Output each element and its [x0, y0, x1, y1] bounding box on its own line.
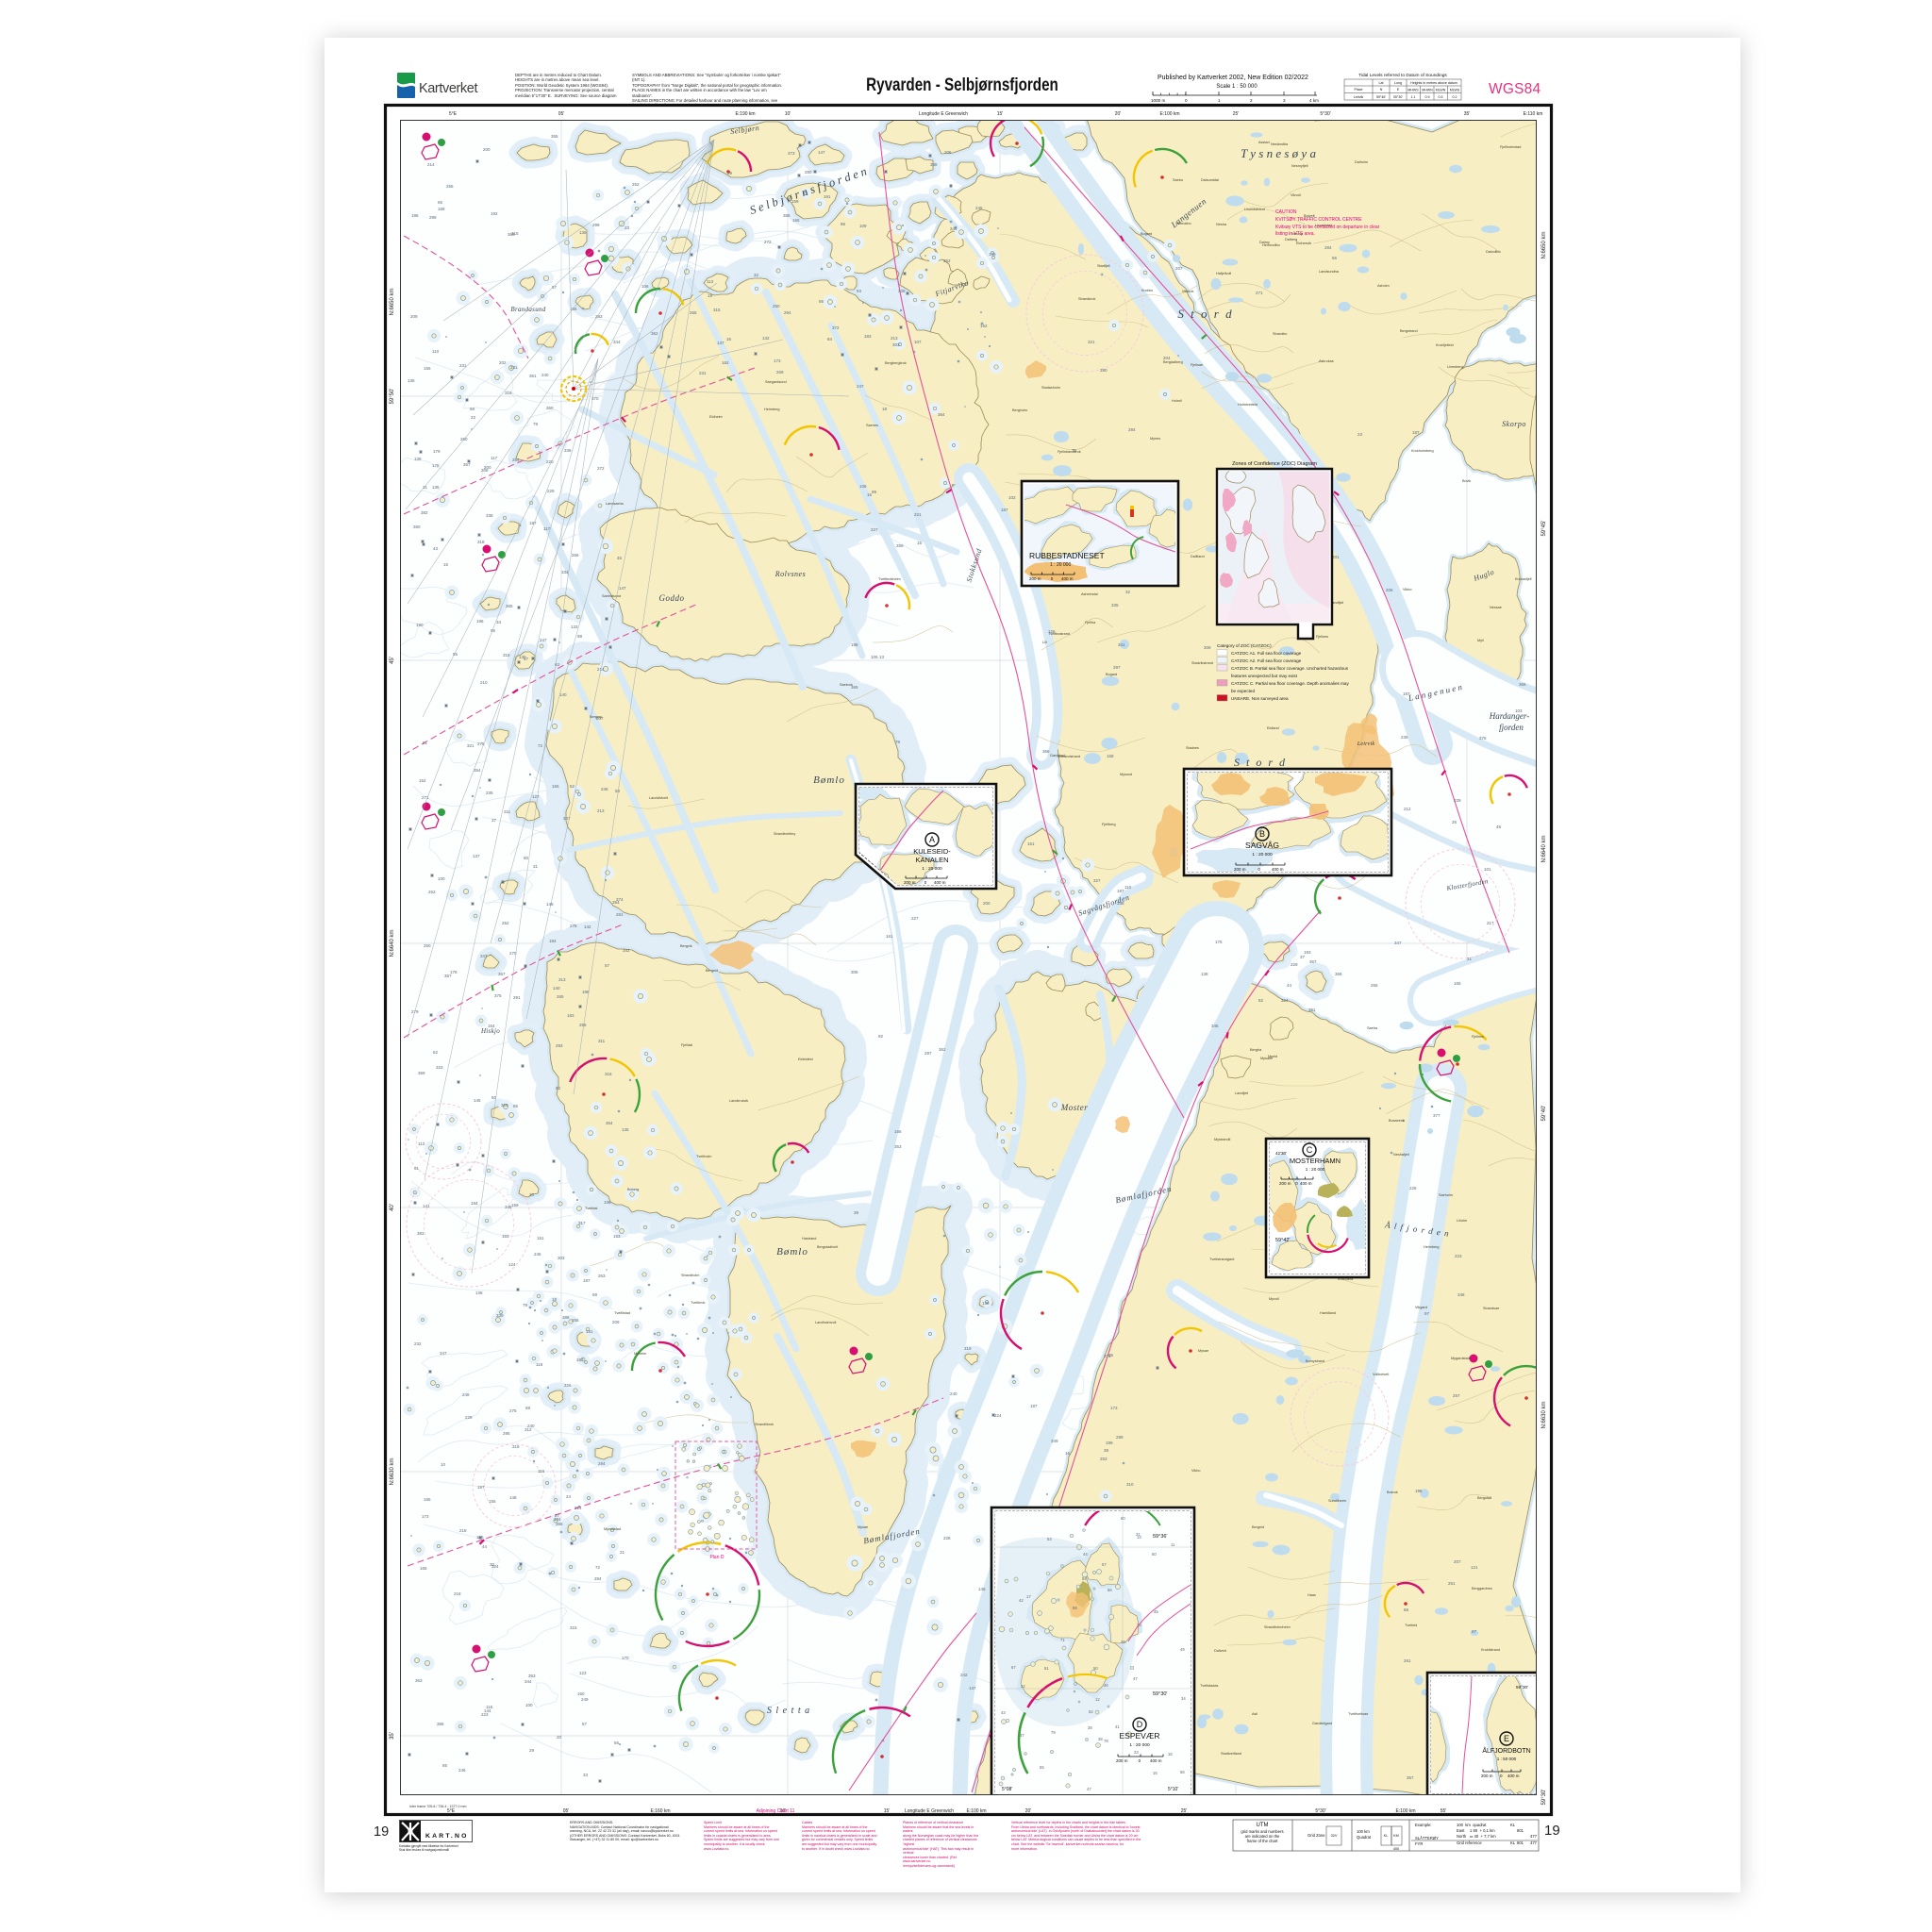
- svg-text:109: 109: [859, 224, 867, 228]
- svg-text:Moster: Moster: [1060, 1103, 1089, 1112]
- svg-text:145: 145: [978, 1587, 986, 1591]
- svg-text:SLÅTTERØY: SLÅTTERØY: [1415, 1836, 1439, 1840]
- svg-text:38: 38: [1104, 1448, 1109, 1453]
- svg-text:Mysae: Mysae: [1198, 1349, 1208, 1353]
- svg-text:58: 58: [615, 789, 621, 793]
- svg-text:363: 363: [415, 1678, 423, 1683]
- svg-text:213: 213: [891, 336, 898, 341]
- svg-text:S t o r d: S t o r d: [1177, 307, 1233, 321]
- svg-text:57: 57: [1102, 1562, 1107, 1567]
- svg-text:336: 336: [564, 448, 572, 453]
- svg-text:269: 269: [896, 543, 904, 548]
- svg-text:65: 65: [513, 1104, 519, 1108]
- svg-text:232: 232: [414, 1341, 422, 1346]
- svg-text:Stadvikstrand: Stadvikstrand: [1191, 661, 1213, 665]
- svg-text:318: 318: [477, 540, 485, 544]
- svg-text:147: 147: [969, 1686, 976, 1690]
- svg-text:32V: 32V: [1331, 1834, 1338, 1838]
- svg-text:315: 315: [570, 1625, 577, 1630]
- svg-text:187: 187: [1001, 508, 1008, 512]
- svg-text:165: 165: [1454, 981, 1461, 986]
- svg-text:200: 200: [484, 465, 491, 470]
- svg-text:315: 315: [713, 308, 721, 312]
- svg-text:284: 284: [1128, 427, 1136, 432]
- svg-text:Rolvsnes: Rolvsnes: [774, 570, 806, 578]
- svg-text:253: 253: [1100, 1457, 1108, 1461]
- svg-text:66 40 + 7,7 km: 66 40 + 7,7 km: [1470, 1834, 1496, 1839]
- svg-text:19: 19: [708, 293, 713, 298]
- svg-text:299: 299: [592, 223, 600, 227]
- svg-text:79: 79: [1051, 1730, 1056, 1735]
- svg-text:369: 369: [508, 232, 515, 237]
- svg-text:N: N: [1380, 88, 1383, 92]
- svg-text:Landviktveit: Landviktveit: [649, 796, 669, 800]
- svg-text:S l e t t a: S l e t t a: [767, 1706, 810, 1716]
- svg-text:23: 23: [1357, 432, 1363, 437]
- svg-text:Heights in metres above datum: Heights in metres above datum: [1410, 81, 1457, 85]
- svg-text:56: 56: [1332, 256, 1338, 260]
- svg-text:Vikkrok: Vikkrok: [1182, 290, 1193, 293]
- svg-text:229: 229: [1291, 962, 1298, 967]
- svg-text:345: 345: [505, 1205, 512, 1209]
- svg-text:127: 127: [532, 794, 540, 799]
- svg-text:117: 117: [543, 526, 551, 531]
- svg-text:151: 151: [1027, 841, 1035, 846]
- svg-text:Place: Place: [1355, 88, 1363, 92]
- svg-text:213: 213: [597, 808, 605, 813]
- svg-text:Myvoll: Myvoll: [1269, 1297, 1279, 1301]
- svg-text:400 m: 400 m: [1507, 1774, 1520, 1778]
- svg-text:352: 352: [943, 258, 951, 263]
- svg-text:190: 190: [416, 623, 424, 627]
- svg-text:263: 263: [598, 1274, 606, 1278]
- svg-text:50: 50: [1093, 1666, 1098, 1671]
- svg-text:Strandsae: Strandsae: [1483, 1307, 1499, 1310]
- svg-text:24: 24: [566, 1494, 572, 1499]
- svg-text:Saeholm: Saeholm: [1439, 1193, 1453, 1197]
- svg-text:Bovik: Bovik: [1462, 479, 1471, 483]
- svg-text:Eidland: Eidland: [1267, 726, 1279, 730]
- svg-text:Vikbo: Vikbo: [1403, 588, 1411, 591]
- svg-text:348: 348: [1457, 1292, 1465, 1297]
- svg-text:271: 271: [1256, 291, 1263, 295]
- svg-text:51: 51: [1044, 1666, 1049, 1671]
- svg-text:303: 303: [558, 1256, 565, 1260]
- svg-text:72: 72: [595, 1565, 601, 1570]
- svg-text:100: 100: [525, 1703, 533, 1707]
- svg-text:149: 149: [989, 252, 996, 257]
- svg-text:183: 183: [567, 1013, 575, 1018]
- svg-text:313: 313: [558, 977, 566, 982]
- svg-text:353: 353: [894, 1144, 902, 1149]
- svg-text:1 : 20 000: 1 : 20 000: [1306, 1167, 1325, 1172]
- svg-text:252: 252: [632, 182, 640, 187]
- svg-text:151: 151: [537, 1236, 544, 1241]
- svg-text:1 : 20 000: 1 : 20 000: [1129, 1742, 1150, 1748]
- svg-text:200 m: 200 m: [1029, 576, 1041, 581]
- svg-text:218: 218: [454, 1591, 461, 1596]
- svg-text:147: 147: [619, 586, 626, 591]
- svg-text:155: 155: [552, 784, 559, 789]
- svg-text:200 m: 200 m: [1116, 1758, 1128, 1763]
- svg-text:5°E: 5°E: [447, 1808, 456, 1814]
- svg-text:299: 299: [429, 215, 437, 220]
- svg-text:229: 229: [1454, 798, 1461, 803]
- svg-text:191: 191: [824, 194, 831, 199]
- svg-text:MHWS: MHWS: [1407, 89, 1419, 92]
- svg-text:52: 52: [570, 784, 575, 789]
- svg-text:297: 297: [1113, 665, 1121, 670]
- svg-text:KL: KL: [1510, 1840, 1516, 1845]
- svg-text:477: 477: [1530, 1834, 1538, 1839]
- svg-text:123: 123: [579, 1671, 587, 1675]
- svg-text:Bomystrand: Bomystrand: [1306, 1359, 1324, 1363]
- svg-text:372: 372: [832, 325, 840, 330]
- svg-text:59°36': 59°36': [1153, 1534, 1168, 1540]
- svg-text:78: 78: [1104, 1739, 1108, 1743]
- svg-text:Nesha: Nesha: [1216, 223, 1227, 226]
- svg-text:362: 362: [651, 331, 658, 336]
- svg-text:1 80 + 0,1 km: 1 80 + 0,1 km: [1470, 1828, 1495, 1833]
- svg-text:318: 318: [503, 653, 510, 658]
- svg-text:Saeeidsund: Saeeidsund: [602, 594, 621, 598]
- svg-text:218: 218: [459, 1528, 467, 1533]
- svg-text:Neshafjell: Neshafjell: [1393, 1153, 1409, 1157]
- svg-text:311: 311: [504, 809, 511, 814]
- svg-text:55: 55: [1040, 1765, 1044, 1770]
- svg-text:250: 250: [424, 943, 431, 948]
- svg-text:15': 15': [884, 1808, 891, 1814]
- svg-text:347: 347: [1394, 941, 1402, 945]
- svg-text:Gardeidgard: Gardeidgard: [1312, 1722, 1332, 1725]
- svg-text:Fjellberg: Fjellberg: [1102, 823, 1116, 826]
- svg-text:Asheimdal: Asheimdal: [1081, 592, 1098, 596]
- svg-text:400 m: 400 m: [1061, 576, 1074, 581]
- svg-text:400 m: 400 m: [1150, 1758, 1162, 1763]
- svg-text:59°45': 59°45': [1541, 521, 1547, 537]
- svg-text:Mysaeli: Mysaeli: [1260, 1057, 1273, 1060]
- svg-text:Category of ZOC (CATZOC): Category of ZOC (CATZOC): [1217, 643, 1272, 648]
- svg-text:features unexpected but may ex: features unexpected but may exist: [1231, 674, 1298, 678]
- svg-text:Fjelldal: Fjelldal: [681, 1043, 692, 1047]
- svg-text:200 m: 200 m: [904, 880, 916, 885]
- svg-text:45': 45': [390, 657, 395, 664]
- svg-text:113: 113: [418, 1141, 425, 1146]
- svg-text:367: 367: [463, 462, 471, 467]
- svg-text:CATZOC C. Partial sea floor c: CATZOC C. Partial sea floor coverage. De…: [1231, 681, 1349, 686]
- svg-text:361: 361: [529, 374, 537, 378]
- svg-text:349: 349: [1051, 1439, 1058, 1443]
- svg-text:Stadtveitland: Stadtveitland: [1221, 1752, 1241, 1756]
- svg-text:251: 251: [1448, 1581, 1456, 1586]
- svg-text:Bergstrand: Bergstrand: [1400, 329, 1418, 333]
- svg-text:Holmli: Holmli: [1172, 399, 1182, 403]
- svg-text:138: 138: [475, 1291, 483, 1295]
- svg-text:196: 196: [1415, 1489, 1423, 1493]
- svg-text:49: 49: [1180, 1647, 1185, 1652]
- svg-text:364: 364: [938, 412, 945, 417]
- svg-text:160: 160: [577, 1691, 585, 1696]
- svg-text:listing in VTS area.: listing in VTS area.: [1275, 231, 1315, 237]
- svg-text:250: 250: [773, 304, 780, 308]
- svg-text:247: 247: [540, 638, 547, 642]
- svg-text:Zones of Confidence (ZOC) Diag: Zones of Confidence (ZOC) Diagram: [1232, 461, 1317, 467]
- svg-text:Fjellha: Fjellha: [1085, 621, 1096, 625]
- svg-text:148: 148: [546, 902, 554, 907]
- svg-text:183: 183: [864, 334, 872, 339]
- svg-text:15': 15': [997, 111, 1004, 117]
- svg-text:338: 338: [898, 289, 906, 293]
- svg-text:16: 16: [1168, 1752, 1173, 1757]
- svg-text:138: 138: [1201, 972, 1208, 976]
- svg-text:161: 161: [886, 934, 893, 939]
- svg-text:357: 357: [444, 974, 452, 978]
- svg-text:235: 235: [486, 791, 493, 795]
- svg-text:Mysae: Mysae: [858, 1525, 868, 1529]
- svg-text:284: 284: [594, 1576, 602, 1581]
- svg-text:E: E: [1397, 88, 1400, 92]
- svg-text:31: 31: [1136, 1532, 1141, 1537]
- svg-text:116: 116: [538, 1469, 545, 1474]
- svg-text:224: 224: [994, 1413, 1002, 1418]
- svg-text:38: 38: [1098, 1737, 1103, 1741]
- svg-text:124: 124: [508, 1262, 516, 1267]
- svg-text:A: A: [929, 835, 935, 844]
- svg-text:135: 135: [408, 378, 415, 383]
- svg-text:212: 212: [1404, 807, 1411, 811]
- svg-text:139: 139: [982, 1301, 990, 1306]
- svg-text:400 m: 400 m: [934, 880, 946, 885]
- svg-text:40': 40': [390, 1204, 395, 1211]
- svg-text:Dalliland: Dalliland: [1191, 555, 1205, 558]
- svg-text:93: 93: [857, 289, 862, 293]
- svg-text:Leirvik: Leirvik: [1357, 741, 1375, 747]
- svg-text:121: 121: [1471, 1565, 1478, 1570]
- svg-text:Mysund: Mysund: [1120, 773, 1132, 776]
- svg-text:SAGVÅG: SAGVÅG: [1245, 841, 1279, 850]
- svg-text:108: 108: [604, 1200, 611, 1205]
- svg-text:Nessae: Nessae: [1490, 606, 1502, 609]
- svg-text:141: 141: [423, 1204, 430, 1208]
- svg-text:245: 245: [534, 1252, 541, 1257]
- svg-text:249: 249: [950, 226, 958, 231]
- svg-text:110: 110: [432, 349, 440, 354]
- svg-text:477: 477: [1530, 1840, 1538, 1845]
- svg-text:21: 21: [620, 1550, 625, 1555]
- svg-text:354: 354: [474, 768, 481, 773]
- svg-text:E: E: [1504, 1734, 1509, 1743]
- svg-text:364: 364: [606, 1121, 613, 1125]
- svg-text:Askrokas: Askrokas: [1319, 359, 1334, 363]
- svg-text:15: 15: [917, 541, 923, 545]
- svg-text:Strandbo: Strandbo: [1273, 332, 1287, 336]
- svg-text:Landsaeha: Landsaeha: [606, 502, 625, 506]
- svg-text:117: 117: [491, 456, 498, 460]
- svg-text:Strandkrok: Strandkrok: [1078, 297, 1095, 301]
- svg-text:Bogard: Bogard: [1141, 232, 1152, 236]
- svg-text:05': 05': [563, 1808, 570, 1814]
- svg-text:Fjellnes: Fjellnes: [1316, 635, 1328, 639]
- svg-text:400: 400: [1393, 1847, 1399, 1851]
- svg-text:184: 184: [549, 939, 557, 943]
- svg-text:ÅLFJORDBOTN: ÅLFJORDBOTN: [1482, 1746, 1530, 1755]
- svg-text:257: 257: [1453, 1393, 1460, 1398]
- svg-text:Asli: Asli: [1252, 1712, 1257, 1716]
- svg-text:227: 227: [871, 527, 878, 532]
- svg-text:0.5: 0.5: [1439, 95, 1443, 99]
- svg-text:62: 62: [1089, 1709, 1093, 1714]
- svg-text:84: 84: [827, 337, 833, 341]
- svg-text:Bergdalberg: Bergdalberg: [1163, 360, 1183, 364]
- svg-text:305: 305: [851, 970, 858, 974]
- svg-text:293: 293: [556, 1043, 563, 1048]
- svg-text:56: 56: [1180, 1770, 1185, 1774]
- svg-text:66: 66: [1108, 1588, 1112, 1592]
- svg-text:365: 365: [506, 604, 513, 608]
- svg-text:229: 229: [465, 1415, 473, 1420]
- svg-text:113: 113: [707, 279, 714, 284]
- svg-text:217: 217: [1487, 921, 1494, 925]
- svg-text:Eidheim: Eidheim: [709, 415, 723, 419]
- svg-text:56: 56: [819, 299, 824, 304]
- svg-text:Saenes: Saenes: [866, 424, 878, 427]
- svg-text:197: 197: [477, 1485, 485, 1490]
- svg-text:1 : 20 000: 1 : 20 000: [1252, 852, 1273, 858]
- svg-text:345: 345: [1211, 1024, 1219, 1028]
- svg-text:Saebo: Saebo: [1173, 178, 1183, 182]
- svg-text:342: 342: [623, 948, 630, 953]
- svg-text:200 m: 200 m: [1481, 1774, 1493, 1778]
- svg-text:31: 31: [533, 864, 539, 869]
- svg-text:KULESEID-: KULESEID-: [913, 847, 951, 856]
- svg-text:UNSARE. Non surveyed area: UNSARE. Non surveyed area: [1231, 696, 1289, 701]
- svg-text:284: 284: [1324, 245, 1332, 250]
- svg-text:47: 47: [1087, 1787, 1091, 1791]
- svg-text:295: 295: [503, 1431, 510, 1436]
- svg-text:108: 108: [859, 484, 867, 489]
- svg-text:Dalsunddal: Dalsunddal: [1201, 178, 1219, 182]
- svg-text:169: 169: [511, 1203, 519, 1207]
- svg-text:388: 388: [930, 162, 938, 167]
- svg-text:165: 165: [792, 218, 800, 223]
- svg-text:Krokbo: Krokbo: [1141, 289, 1153, 292]
- svg-text:Eidnesvik: Eidnesvik: [1296, 241, 1311, 245]
- svg-text:UTM: UTM: [1257, 1823, 1269, 1828]
- svg-text:38: 38: [1088, 1725, 1092, 1730]
- svg-text:210: 210: [480, 680, 488, 685]
- svg-text:275: 275: [509, 1408, 517, 1413]
- svg-text:186: 186: [411, 213, 419, 218]
- svg-text:355: 355: [551, 134, 558, 139]
- svg-text:Hafjellvoll: Hafjellvoll: [1216, 272, 1231, 275]
- svg-text:91: 91: [423, 741, 428, 745]
- svg-text:Eideideid: Eideideid: [798, 1058, 813, 1061]
- svg-text:400 m: 400 m: [1272, 867, 1284, 872]
- svg-text:153: 153: [613, 1234, 621, 1239]
- svg-text:165: 165: [420, 1566, 427, 1571]
- svg-text:Landsundha: Landsundha: [1319, 270, 1340, 274]
- svg-text:Goddo: Goddo: [659, 593, 685, 603]
- svg-text:362: 362: [939, 1047, 946, 1052]
- svg-text:Vollbotveit: Vollbotveit: [1373, 1373, 1390, 1376]
- svg-text:34: 34: [1181, 1696, 1186, 1701]
- svg-text:39: 39: [1121, 1640, 1125, 1644]
- svg-text:247: 247: [857, 384, 864, 389]
- svg-text:Dalholm: Dalholm: [1355, 160, 1368, 164]
- svg-text:Landfjell: Landfjell: [1235, 1091, 1248, 1095]
- svg-text:N:6640 km: N:6640 km: [390, 929, 395, 957]
- svg-text:67: 67: [582, 1722, 588, 1726]
- svg-text:Tveitholm: Tveitholm: [696, 1155, 711, 1158]
- svg-text:32: 32: [1125, 590, 1131, 594]
- svg-text:Bømlo: Bømlo: [813, 774, 845, 786]
- svg-text:67: 67: [1011, 1665, 1016, 1670]
- svg-text:Bømlo: Bømlo: [776, 1246, 808, 1257]
- svg-text:N:6640 km: N:6640 km: [1541, 835, 1547, 862]
- svg-text:119: 119: [536, 1362, 543, 1367]
- svg-text:309: 309: [1204, 645, 1211, 650]
- svg-text:E:190 km: E:190 km: [735, 111, 755, 117]
- svg-text:48: 48: [1496, 824, 1502, 829]
- svg-text:5°10': 5°10': [1168, 1787, 1178, 1792]
- svg-text:Nesmyfjell: Nesmyfjell: [1291, 164, 1308, 168]
- svg-text:353: 353: [528, 1674, 536, 1678]
- svg-text:92: 92: [878, 1034, 884, 1039]
- svg-text:20: 20: [529, 1192, 535, 1197]
- svg-text:59°30': 59°30': [1153, 1691, 1168, 1697]
- svg-text:294: 294: [784, 310, 791, 315]
- svg-text:59: 59: [592, 1292, 598, 1297]
- svg-text:373: 373: [788, 151, 795, 156]
- svg-text:142: 142: [584, 924, 591, 929]
- svg-text:71: 71: [1060, 1638, 1065, 1642]
- svg-text:316: 316: [505, 391, 512, 395]
- svg-text:32: 32: [754, 273, 759, 277]
- svg-text:140: 140: [559, 692, 567, 697]
- svg-text:B: B: [1259, 829, 1265, 839]
- svg-text:Dalvollbo: Dalvollbo: [1486, 250, 1501, 254]
- svg-text:54: 54: [1082, 1576, 1087, 1581]
- svg-text:375: 375: [494, 993, 502, 998]
- svg-text:347: 347: [440, 1351, 447, 1356]
- svg-text:22: 22: [471, 415, 476, 420]
- svg-text:37: 37: [1300, 955, 1306, 959]
- svg-text:214: 214: [427, 162, 435, 167]
- svg-text:57: 57: [605, 963, 610, 968]
- svg-text:13: 13: [879, 655, 885, 659]
- svg-text:05': 05': [558, 111, 565, 117]
- svg-text:CATZOC B. Partial sea floor c: CATZOC B. Partial sea floor coverage. Un…: [1231, 666, 1349, 671]
- svg-text:Bergha: Bergha: [1250, 1048, 1262, 1052]
- svg-text:Saegardsund: Saegardsund: [765, 380, 787, 384]
- svg-text:200: 200: [483, 147, 491, 152]
- svg-text:206: 206: [944, 150, 952, 155]
- svg-text:46: 46: [1104, 1683, 1108, 1688]
- svg-text:KM: KM: [1393, 1834, 1399, 1838]
- svg-text:KVITSØY TRAFFIC CONTROL CENTRE: KVITSØY TRAFFIC CONTROL CENTRE: [1275, 217, 1362, 223]
- svg-text:Bergstadtveit: Bergstadtveit: [817, 1245, 839, 1249]
- svg-text:59°42': 59°42': [1275, 1238, 1291, 1243]
- svg-text:35': 35': [1464, 111, 1471, 117]
- svg-text:E:100 km: E:100 km: [966, 1808, 986, 1814]
- svg-text:KANALEN: KANALEN: [915, 856, 948, 864]
- svg-text:155: 155: [424, 366, 431, 371]
- svg-text:16: 16: [1153, 1771, 1158, 1775]
- svg-text:59°30': 59°30': [1541, 1790, 1547, 1806]
- svg-text:145: 145: [474, 1098, 481, 1103]
- svg-text:372: 372: [597, 466, 605, 471]
- svg-text:192: 192: [491, 211, 498, 216]
